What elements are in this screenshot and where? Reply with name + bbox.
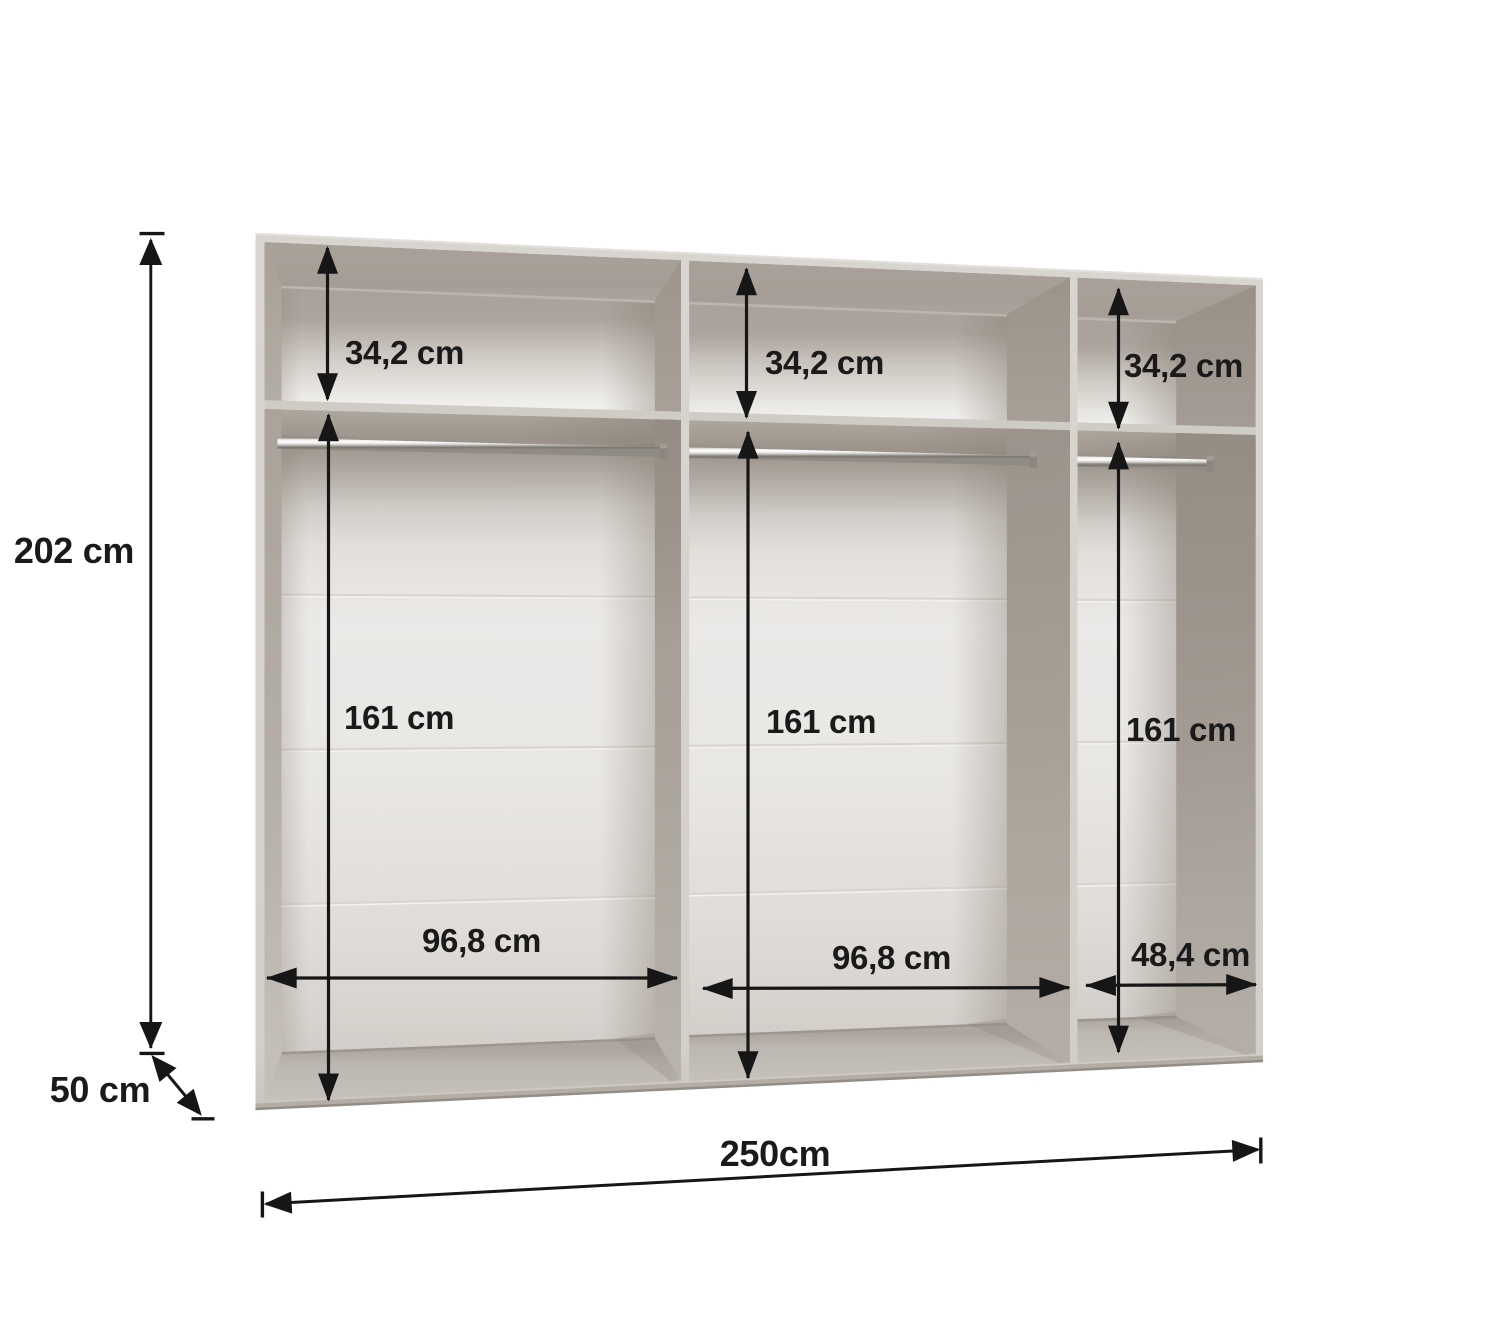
svg-text:161 cm: 161 cm [766, 703, 876, 740]
svg-text:96,8 cm: 96,8 cm [422, 922, 541, 959]
svg-text:50 cm: 50 cm [50, 1069, 151, 1110]
svg-text:34,2 cm: 34,2 cm [765, 344, 884, 381]
svg-text:250cm: 250cm [720, 1133, 831, 1174]
svg-text:34,2 cm: 34,2 cm [1124, 347, 1243, 384]
svg-text:96,8 cm: 96,8 cm [832, 939, 951, 976]
svg-text:161 cm: 161 cm [1126, 711, 1236, 748]
svg-text:48,4 cm: 48,4 cm [1131, 936, 1250, 973]
svg-text:161 cm: 161 cm [344, 699, 454, 736]
svg-text:34,2 cm: 34,2 cm [345, 334, 464, 371]
svg-text:202 cm: 202 cm [14, 530, 134, 571]
